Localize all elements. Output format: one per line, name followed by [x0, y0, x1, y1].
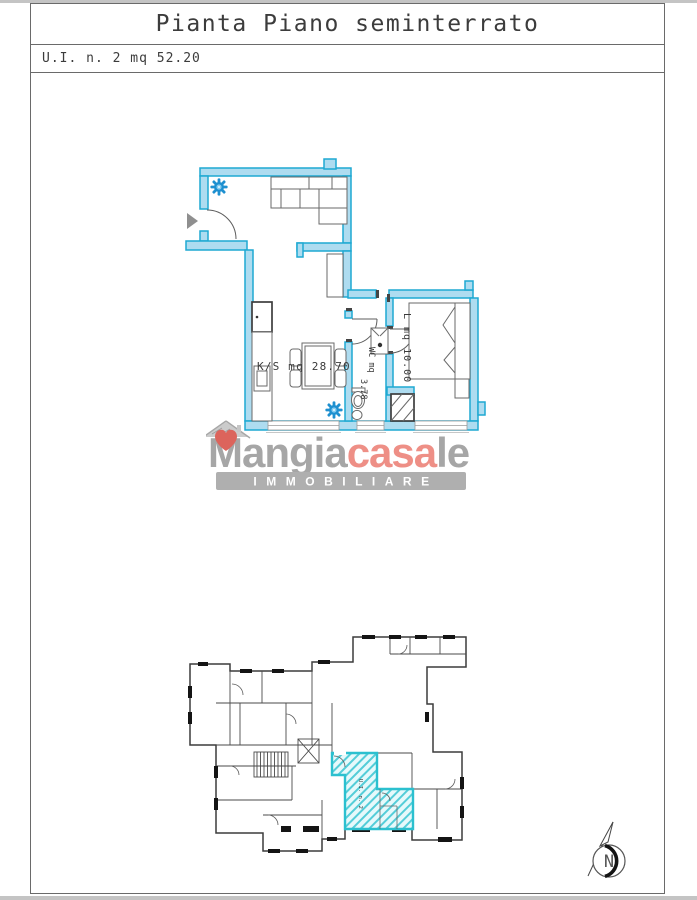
brand-graphic: Mangiacasale IMMOBILIARE [206, 420, 490, 494]
radiator-icon [325, 401, 342, 418]
room-label-kitchen-living: K/S mq 28.70 [257, 360, 351, 373]
north-compass-icon: N [580, 810, 650, 890]
unit-designation: U.I. n. 2 mq 52.20 [42, 51, 201, 66]
closet [327, 254, 343, 297]
brand-part-red: casa [347, 429, 438, 476]
scan-edge-bottom [0, 896, 697, 900]
bidet [352, 410, 362, 419]
page-title: Pianta Piano seminterrato [156, 11, 540, 37]
floor-plan-sheet: Pianta Piano seminterrato U.I. n. 2 mq 5… [0, 0, 697, 900]
brand-name: Mangiacasale [208, 429, 469, 476]
building-overview-plan: U.I. n. 2 [183, 628, 483, 868]
entry-arrow-icon [187, 213, 198, 229]
north-letter: N [604, 852, 614, 872]
shower [391, 394, 414, 421]
kitchen-counter [252, 332, 272, 421]
fridge [252, 302, 272, 332]
title-band: Pianta Piano seminterrato [30, 3, 665, 45]
building-outline [190, 637, 466, 851]
main-floor-plan: K/S mq 28.70 L mq 10.00 WC mq 3.78 [180, 150, 500, 440]
nightstand [455, 379, 469, 398]
brand-tagline: IMMOBILIARE [253, 475, 438, 489]
brand-part-gray2: le [436, 429, 469, 476]
radiator-icon [210, 178, 227, 195]
watermark-logo: Mangiacasale IMMOBILIARE [206, 420, 490, 494]
room-label-wc: WC mq [366, 347, 376, 373]
subtitle-band: U.I. n. 2 mq 52.20 [30, 45, 665, 73]
bed [409, 303, 470, 398]
north-arrow [600, 822, 613, 846]
entry-door-arc [207, 210, 236, 239]
room-label-bedroom: L mq 10.00 [401, 313, 412, 383]
room-label-wc-area: 3.78 [358, 379, 368, 399]
unit-highlight-label: U.I. n. 2 [357, 779, 363, 809]
sofa [271, 177, 347, 224]
